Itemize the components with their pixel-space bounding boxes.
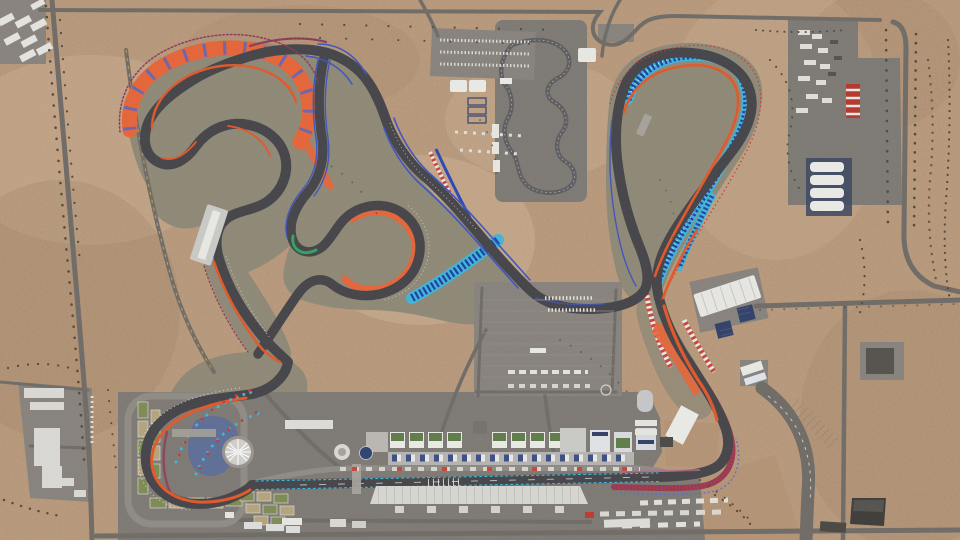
aerial-view <box>0 0 960 540</box>
circuit-aerial-render <box>0 0 960 540</box>
photo-grain-overlay <box>0 0 960 540</box>
